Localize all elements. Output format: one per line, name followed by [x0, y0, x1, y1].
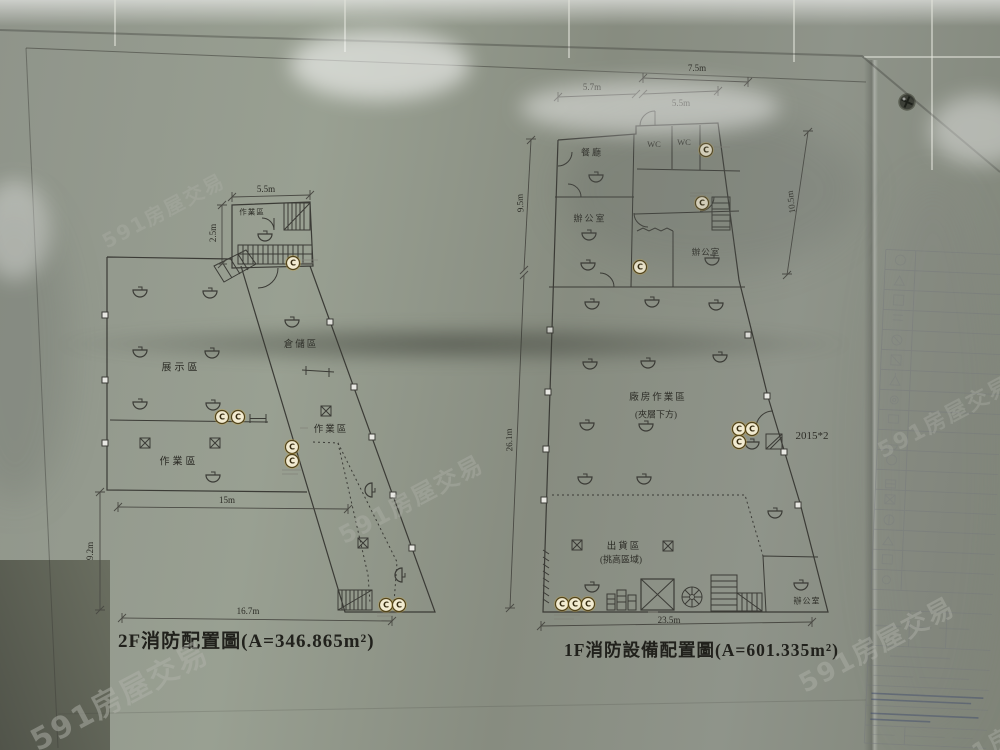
svg-text:C: C — [572, 600, 578, 609]
f2-room-label-work-bottom: 作業區 — [160, 453, 199, 468]
svg-text:C: C — [290, 259, 296, 268]
f2-dim-mid-width: 15m — [219, 495, 235, 505]
extinguisher-icon: C — [731, 434, 747, 450]
extinguisher-icon: C — [580, 596, 596, 612]
extinguisher-icon: C — [744, 421, 760, 437]
f2-dim-bottom-width: 16.7m — [237, 606, 260, 616]
svg-text:C: C — [383, 601, 389, 610]
f2-floor-plan: C C C C C C C — [95, 190, 435, 626]
shadow-cloud — [560, 110, 860, 270]
svg-text:C: C — [289, 457, 295, 466]
f1-annotation-shutter: 2015*2 — [796, 430, 829, 442]
svg-text:C: C — [559, 600, 565, 609]
spiral-fan-icon — [682, 587, 702, 607]
machine-xbox — [641, 579, 674, 610]
f1-plan-title: 1F消防設備配置圖(A=601.335m²) — [564, 637, 839, 662]
f1-room-label-factory-sub: (夾層下方) — [635, 408, 677, 421]
f1-room-label-shipping: 出貨區 — [607, 538, 642, 552]
shutter-box — [766, 434, 782, 449]
svg-text:C: C — [736, 438, 742, 447]
glare-spot — [290, 30, 470, 100]
extinguisher-icon: C — [285, 255, 301, 271]
stairs-icon — [338, 590, 372, 610]
svg-text:C: C — [736, 425, 742, 434]
extinguisher-icon: C — [230, 409, 246, 425]
equipment-panels — [607, 590, 636, 610]
f2-room-label-work-top: 作業區 — [239, 207, 265, 218]
svg-text:C: C — [235, 413, 241, 422]
shadow-band — [0, 316, 900, 372]
svg-text:C: C — [396, 601, 402, 610]
svg-text:C: C — [289, 443, 295, 452]
extinguisher-icon: C — [284, 453, 300, 469]
extinguisher-icon: C — [391, 597, 407, 613]
f1-dim-top-width: 7.5m — [688, 63, 706, 73]
door-arc — [262, 218, 274, 230]
svg-text:C: C — [219, 413, 225, 422]
stairs-icon — [711, 575, 762, 611]
f1-room-label-shipping-sub: (挑高區域) — [600, 553, 642, 566]
extinguisher-icon: C — [214, 409, 230, 425]
f2-dim-top-height: 2.5m — [208, 224, 218, 242]
f2-dim-top-width: 5.5m — [257, 184, 275, 194]
svg-text:C: C — [749, 425, 755, 434]
f1-dim-full-left-height: 26.1m — [504, 428, 515, 451]
f2-room-label-work-corridor: 作業區 — [314, 421, 349, 435]
extinguisher-icon: C — [284, 439, 300, 455]
photo-of-floor-plans: C C C C C C C — [0, 0, 1000, 750]
f2-dim-left-height: 9.2m — [85, 542, 95, 560]
svg-text:C: C — [585, 600, 591, 609]
f1-dim-bottom-width: 23.5m — [658, 615, 681, 625]
door-arc — [258, 268, 278, 288]
f1-room-label-office-bottom: 辦公室 — [794, 596, 821, 607]
svg-text:C: C — [637, 263, 643, 272]
f1-dim-upper-left-height: 9.5m — [515, 194, 526, 213]
f1-room-label-factory: 廠房作業區 — [629, 389, 687, 403]
glare-spot — [520, 80, 780, 135]
detector-icon — [258, 231, 272, 241]
